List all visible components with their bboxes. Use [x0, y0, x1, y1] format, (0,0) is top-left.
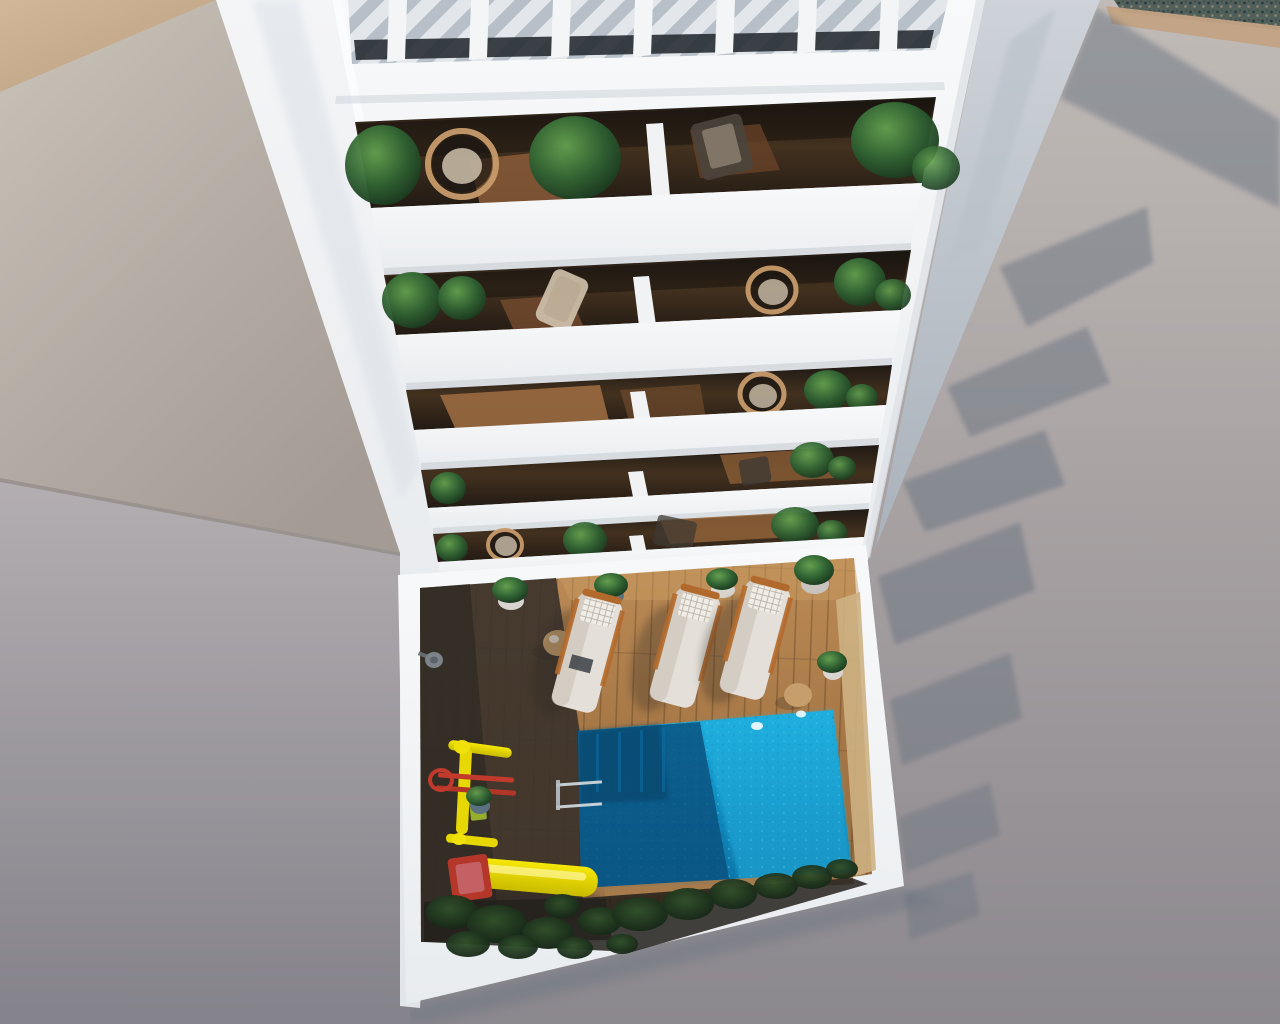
hedge-bush	[612, 897, 668, 931]
playground-ball	[452, 833, 466, 845]
hedge-bush	[557, 937, 593, 959]
balcony3-chair-cushion	[749, 384, 777, 408]
pool-light-glint	[751, 722, 763, 730]
balcony2-plant	[875, 279, 911, 311]
potted-plant	[466, 786, 492, 806]
hedge-bush	[446, 931, 490, 957]
potted-plant	[492, 577, 528, 603]
potted-plant	[817, 651, 847, 673]
outdoor-shower-head-center	[430, 657, 438, 664]
balcony4-plant	[828, 456, 856, 480]
hedge-bush	[662, 888, 714, 920]
render-viewport	[0, 0, 1280, 1024]
terrace-plant	[771, 507, 819, 543]
hedge-bush	[498, 935, 538, 959]
pool-deep-corner	[578, 724, 668, 804]
balcony3-plant	[804, 370, 852, 410]
potted-plant	[794, 555, 834, 585]
hedge-bush	[792, 865, 832, 889]
pergola-slat	[797, 0, 817, 54]
pool-light-glint	[796, 711, 806, 718]
pergola-slat	[715, 0, 735, 55]
balcony2-plant	[438, 276, 486, 320]
balcony1-plant	[345, 125, 421, 205]
pool-ladder-post	[556, 780, 560, 810]
terrace-chair-cushion	[495, 536, 517, 556]
hedge-bush	[754, 873, 798, 899]
ground-left-pavement	[0, 482, 410, 1024]
aerial-building-render	[0, 0, 1280, 1024]
side-table	[784, 683, 812, 707]
balcony1-chair-cushion	[442, 148, 482, 184]
pergola-slat	[633, 0, 653, 57]
hedge-bush	[544, 894, 580, 918]
playground-ball	[454, 740, 470, 754]
potted-plant	[706, 568, 738, 590]
hedge-bush	[826, 859, 858, 879]
balcony4-plant	[790, 442, 834, 478]
pool-step-line	[640, 730, 643, 792]
balcony1-plant	[529, 116, 621, 200]
terrace-plant	[436, 534, 468, 562]
pergola-slat	[469, 0, 489, 60]
balcony4-chair	[738, 456, 772, 487]
pergola-slat	[879, 0, 899, 52]
balcony2-chair-cushion	[758, 279, 788, 305]
pool-step-line	[618, 732, 621, 792]
balcony2-plant	[382, 272, 442, 328]
play-wagon-seat	[455, 861, 485, 894]
pergola-slat	[387, 0, 407, 62]
hedge-bush	[606, 934, 638, 954]
pergola-slat	[551, 0, 571, 58]
balcony4-plant	[430, 472, 466, 504]
hedge-bush	[709, 879, 757, 909]
pool-step-line	[662, 728, 665, 792]
